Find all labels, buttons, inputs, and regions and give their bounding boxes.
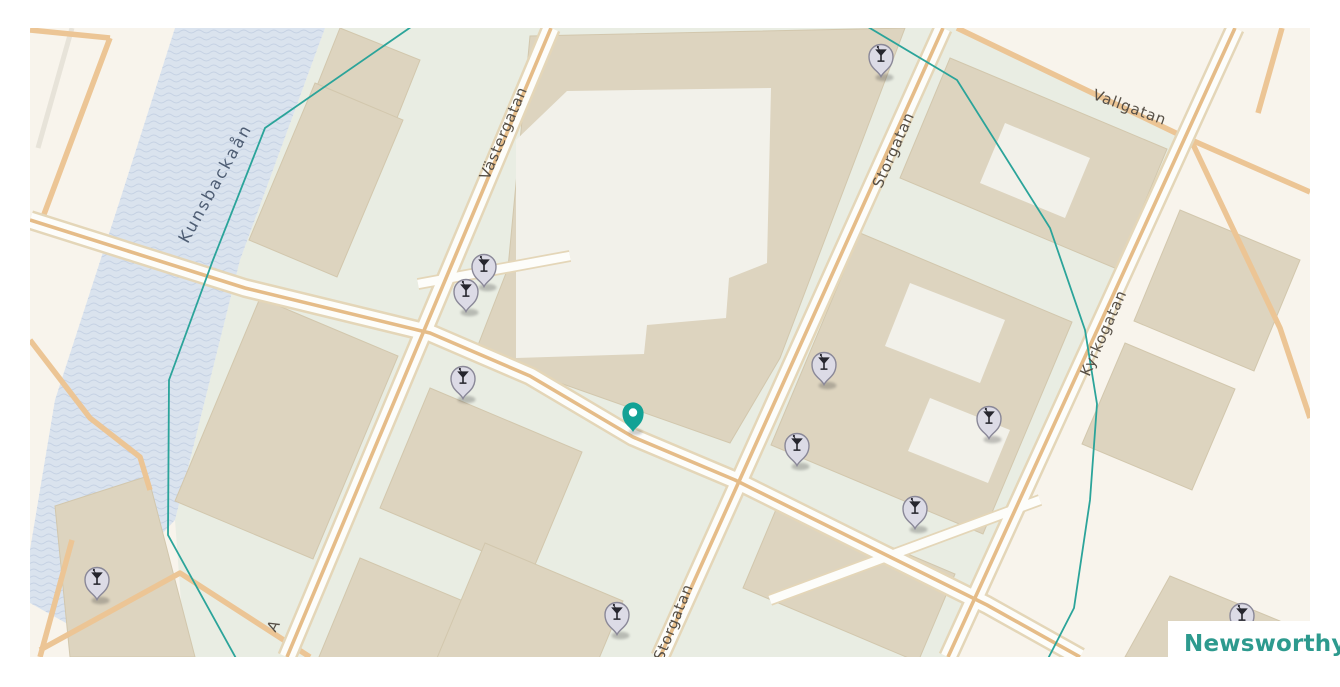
newsworthy-logo[interactable]: Newsworthy (1168, 621, 1340, 667)
map-canvas[interactable]: VästergatanStorgatanStorgatanKyrkogatanV… (30, 28, 1310, 657)
page-frame: VästergatanStorgatanStorgatanKyrkogatanV… (0, 0, 1340, 687)
logo-text: Newsworthy (1184, 631, 1340, 657)
map-viewport[interactable]: VästergatanStorgatanStorgatanKyrkogatanV… (30, 28, 1310, 657)
